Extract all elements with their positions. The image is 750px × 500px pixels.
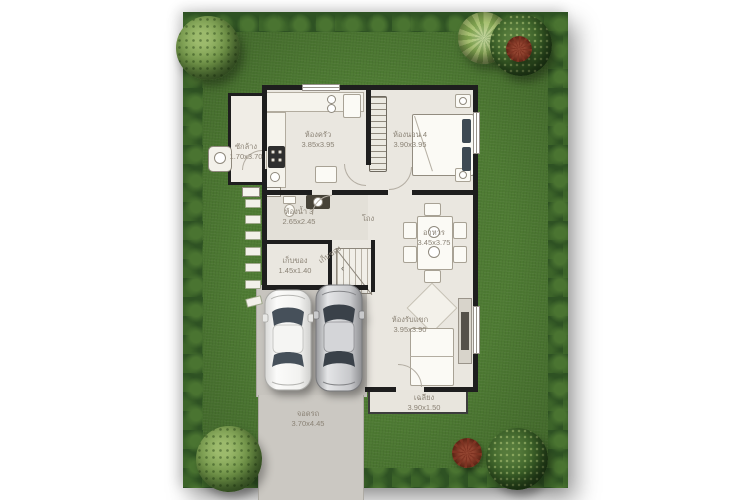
- toilet-tank: [283, 196, 296, 204]
- burner-icon: [271, 158, 275, 162]
- room-label-kitchen: ห้องครัว 3.85x3.95: [302, 130, 335, 150]
- room-name: โถง: [362, 214, 374, 223]
- dining-chair: [403, 222, 417, 239]
- room-dims: 2.65x2.45: [283, 217, 316, 226]
- wall-bedroom-bottom-right: [412, 190, 478, 195]
- wall-left-upper: [262, 85, 267, 151]
- room-name: ห้องรับแขก: [392, 315, 428, 324]
- room-label-storage: เก็บของ 1.45x1.40: [279, 256, 312, 276]
- dining-chair: [424, 270, 441, 283]
- sink-basin-icon: [327, 104, 336, 113]
- room-label-dining: อาหาร 3.45x3.75: [418, 228, 451, 248]
- room-dims: 1.45x1.40: [279, 266, 312, 275]
- sink-basin-icon: [327, 95, 336, 104]
- wall-living-bottom-right: [424, 387, 478, 392]
- room-label-carport: จอดรถ 3.70x4.45: [292, 409, 325, 429]
- pillow: [462, 119, 471, 143]
- stair-direction-arrow-icon: ‹: [341, 263, 344, 273]
- stepping-stone: [245, 247, 261, 256]
- lamp-icon: [459, 171, 467, 179]
- room-dims: 1.70x3.70: [230, 152, 263, 161]
- car-silver: [314, 282, 364, 394]
- plate-icon: [428, 246, 440, 258]
- stove: [268, 146, 285, 168]
- burner-icon: [278, 158, 282, 162]
- prep-sink-icon: [270, 172, 280, 182]
- wall-stairs-right: [371, 240, 375, 292]
- room-label-bedroom4: ห้องนอน 4 3.90x3.95: [393, 130, 427, 150]
- dining-chair: [403, 246, 417, 263]
- floor-laundry: [228, 93, 265, 185]
- room-dims: 3.95x3.90: [394, 325, 427, 334]
- kitchen-island-cart: [315, 166, 337, 183]
- burner-icon: [271, 150, 275, 154]
- room-label-living: ห้องรับแขก 3.95x3.90: [392, 315, 428, 335]
- window-kitchen: [302, 84, 340, 91]
- sofa-cushion-line: [410, 356, 454, 357]
- stepping-stone: [245, 263, 261, 272]
- wall-bedroom-bottom-left: [366, 190, 388, 195]
- tv-icon: [461, 312, 469, 350]
- stepping-stone: [245, 280, 261, 289]
- ac-unit: [242, 187, 260, 197]
- stepping-stone: [245, 215, 261, 224]
- tank-lid-icon: [214, 152, 226, 164]
- room-name: ห้องครัว: [305, 130, 331, 139]
- tree: [176, 16, 240, 80]
- wall-living-bottom-left: [365, 387, 396, 392]
- stepping-stone: [245, 199, 261, 208]
- room-name: เฉลียง: [414, 393, 434, 402]
- room-dims: 3.45x3.75: [418, 238, 451, 247]
- room-label-laundry: ซักล้าง 1.70x3.70: [230, 142, 263, 162]
- wardrobe: [369, 96, 387, 172]
- room-dims: 3.90x1.50: [408, 403, 441, 412]
- pillow: [462, 147, 471, 171]
- dining-chair: [424, 203, 441, 216]
- room-label-porch: เฉลียง 3.90x1.50: [408, 393, 441, 413]
- lamp-icon: [459, 97, 467, 105]
- room-dims: 3.70x4.45: [292, 419, 325, 428]
- room-name: อาหาร: [423, 228, 445, 237]
- room-name: เก็บของ: [282, 256, 307, 265]
- window-living: [473, 306, 480, 354]
- dining-chair: [453, 222, 467, 239]
- stepping-stone: [245, 231, 261, 240]
- room-dims: 3.85x3.95: [302, 140, 335, 149]
- floor-plan-canvas: ‹: [0, 0, 750, 500]
- tree: [196, 426, 262, 492]
- window-bedroom: [473, 112, 480, 154]
- wall-kitchen-bedroom: [366, 85, 371, 165]
- tree: [486, 428, 548, 490]
- room-name: ห้องนอน 4: [393, 130, 427, 139]
- wall-bath-top-left: [262, 190, 312, 195]
- room-label-bathroom3: ห้องน้ำ 3 2.65x2.45: [283, 207, 316, 227]
- room-name: ซักล้าง: [235, 142, 257, 151]
- room-name: จอดรถ: [297, 409, 319, 418]
- room-name: ห้องน้ำ 3: [285, 207, 314, 216]
- car-white: [263, 287, 313, 393]
- fridge: [343, 94, 361, 118]
- room-label-hall: โถง: [362, 214, 374, 224]
- red-plant: [506, 36, 532, 62]
- burner-icon: [278, 150, 282, 154]
- room-dims: 3.90x3.95: [394, 140, 427, 149]
- red-plant: [452, 438, 482, 468]
- wall-left-lower: [262, 169, 267, 290]
- wall-storage-top: [262, 240, 332, 244]
- dining-chair: [453, 246, 467, 263]
